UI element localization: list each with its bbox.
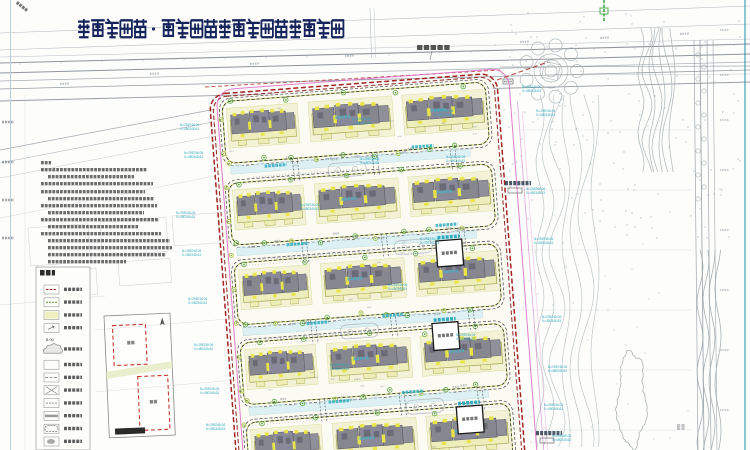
svg-text:X=450345.63: X=450345.63 <box>534 241 553 245</box>
svg-text:X=450345.63: X=450345.63 <box>206 427 225 431</box>
svg-text:X=450345.63: X=450345.63 <box>420 241 439 245</box>
svg-text:X=450345.63: X=450345.63 <box>446 159 465 163</box>
svg-text:X=450345.63: X=450345.63 <box>548 369 567 373</box>
svg-text:X=450345.63: X=450345.63 <box>526 191 545 195</box>
svg-text:X=450345.63: X=450345.63 <box>180 127 199 131</box>
svg-text:X=450345.63: X=450345.63 <box>536 113 555 117</box>
svg-text:X=450345.63: X=450345.63 <box>182 253 201 257</box>
svg-text:X=450345.63: X=450345.63 <box>330 367 349 371</box>
svg-text:X=450345.63: X=450345.63 <box>360 161 379 165</box>
svg-text:X=450345.63: X=450345.63 <box>388 287 407 291</box>
svg-text:X=450345.63: X=450345.63 <box>522 89 541 93</box>
svg-text:X=450345.63: X=450345.63 <box>456 337 475 341</box>
svg-text:X=450345.63: X=450345.63 <box>194 347 213 351</box>
svg-text:X=450345.63: X=450345.63 <box>300 207 319 211</box>
svg-text:X=450345.63: X=450345.63 <box>184 155 203 159</box>
svg-text:X=450345.63: X=450345.63 <box>188 301 207 305</box>
svg-text:8.00: 8.00 <box>46 337 55 342</box>
svg-text:X=450345.63: X=450345.63 <box>352 121 371 125</box>
svg-text:X=450345.63: X=450345.63 <box>176 215 195 219</box>
svg-text:X=450345.63: X=450345.63 <box>544 407 563 411</box>
svg-text:X=450345.63: X=450345.63 <box>542 319 561 323</box>
svg-text:X=450345.63: X=450345.63 <box>434 113 453 117</box>
svg-text:X=450345.63: X=450345.63 <box>552 438 571 442</box>
svg-text:X=450345.63: X=450345.63 <box>200 391 219 395</box>
